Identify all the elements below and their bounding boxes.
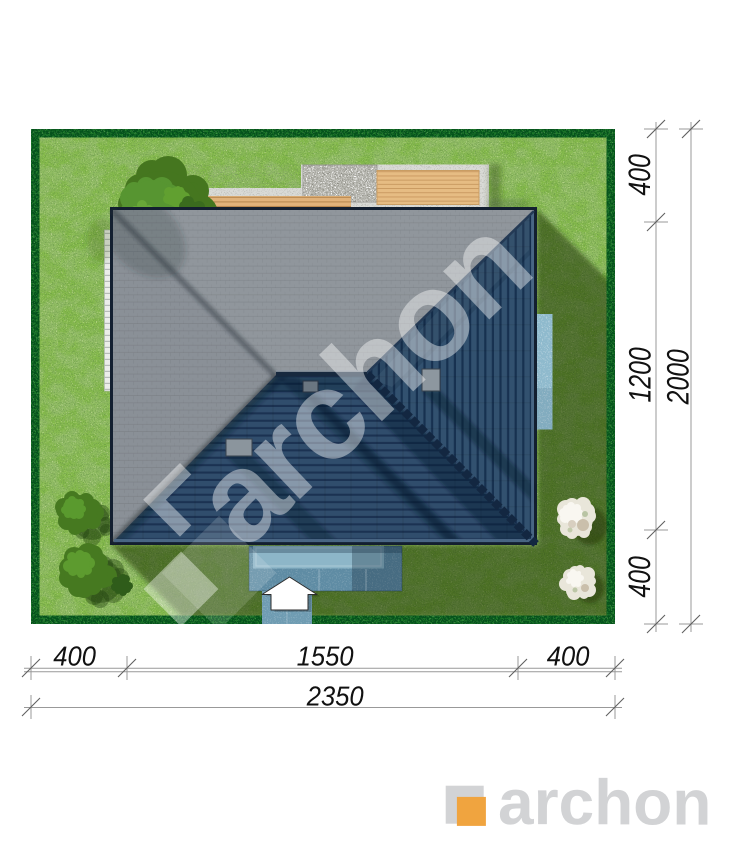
svg-text:archon: archon bbox=[498, 766, 712, 839]
